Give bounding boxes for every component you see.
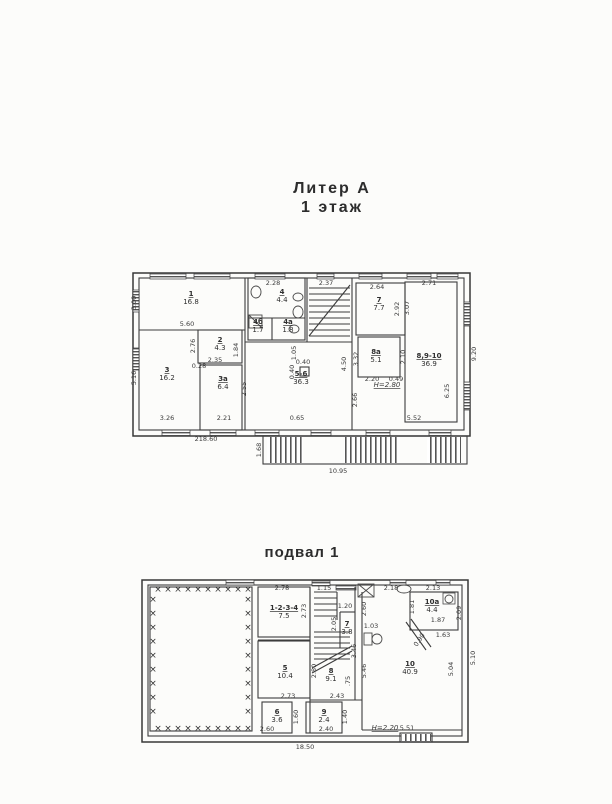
plumbing-fixture: [293, 293, 303, 301]
dimension-label: 2.60: [260, 725, 274, 733]
dimension-label: 2.40: [319, 725, 333, 733]
room-area-label: 36.3: [293, 378, 309, 386]
window-hatch: [133, 348, 139, 370]
room-area-label: 4.3: [214, 344, 225, 352]
room-area-label: 1.7: [252, 326, 263, 334]
dimension-label: 6.25: [443, 384, 451, 398]
dimension-label: 2.05: [330, 617, 338, 631]
window-hatch: [336, 585, 356, 590]
room-area-label: 7.7: [373, 304, 384, 312]
wall-x-mark: ×: [244, 707, 252, 717]
steps-hatch: [427, 437, 461, 463]
room-area-label: 16.2: [159, 374, 175, 382]
wall-x-mark: ×: [154, 724, 162, 734]
room-area-label: 9.1: [325, 675, 336, 683]
window-hatch: [255, 430, 279, 436]
dimension-label: 2.64: [370, 283, 384, 291]
dimension-label: 5.16: [130, 371, 138, 385]
floor-plan-drawing: 5.602.282.372.642.713.005.169.202.761.84…: [0, 0, 612, 804]
dimension-label: 1.60: [292, 710, 300, 724]
wall-x-mark: ×: [214, 585, 222, 595]
dimension-label: 4.50: [340, 357, 348, 371]
dimension-label: 0.65: [290, 414, 304, 422]
window-hatch: [437, 273, 458, 279]
dimension-label: 5.04: [447, 662, 455, 676]
wall-x-mark: ×: [224, 724, 232, 734]
wall-line: [312, 646, 352, 668]
wall-x-mark: ×: [149, 651, 157, 661]
wall-x-mark: ×: [184, 585, 192, 595]
dimension-label: 2.73: [300, 604, 308, 618]
dimension-label: 0.28: [192, 362, 206, 370]
wall-x-mark: ×: [244, 637, 252, 647]
window-hatch: [464, 382, 470, 410]
wall-x-mark: ×: [164, 724, 172, 734]
steps-hatch: [401, 734, 431, 741]
wall-x-mark: ×: [149, 637, 157, 647]
wall-x-mark: ×: [154, 585, 162, 595]
plumbing-fixture: [372, 634, 382, 644]
room-number-label: 5-6: [295, 370, 308, 378]
wall-x-mark: ×: [174, 585, 182, 595]
dimension-label: 5.10: [469, 651, 477, 665]
dimension-label: 1.84: [232, 343, 240, 357]
dimension-label: 2.80: [310, 664, 318, 678]
wall-x-mark: ×: [214, 724, 222, 734]
dimension-label: 218.60: [195, 435, 218, 443]
basement-plan: ××××××××××××××××××××××××××××××××××××××2.…: [142, 580, 477, 751]
room-number-label: 1: [189, 290, 194, 298]
wall-x-mark: ×: [149, 707, 157, 717]
dimension-label: 18.50: [296, 743, 315, 751]
dimension-label: 1.68: [255, 443, 263, 457]
room-number-label: 5: [283, 664, 288, 672]
wall-x-mark: ×: [204, 724, 212, 734]
wall-x-mark: ×: [184, 724, 192, 734]
dimension-label: 2.18: [384, 584, 398, 592]
dimension-label: 2.92: [393, 302, 401, 316]
room-number-label: 10а: [425, 598, 440, 606]
wall-x-mark: ×: [234, 724, 242, 734]
wall-x-mark: ×: [244, 651, 252, 661]
room-area-label: 4.4: [426, 606, 438, 614]
scanned-floor-plan-page: Литер А 1 этаж подвал 1 5.602.282.372.64…: [0, 0, 612, 804]
plumbing-fixture: [445, 595, 453, 603]
window-hatch: [311, 430, 331, 436]
dimension-label: 10.95: [329, 467, 348, 475]
plumbing-fixture: [251, 286, 261, 298]
wall-x-mark: ×: [194, 585, 202, 595]
room-number-label: 10: [405, 660, 415, 668]
dimension-label: 2.35: [208, 356, 222, 364]
dimension-label: 5.51: [400, 724, 414, 732]
wall-x-mark: ×: [149, 693, 157, 703]
dimension-label: 1.63: [436, 631, 450, 639]
room-area-label: 2.4: [318, 716, 330, 724]
dimension-label: 1.20: [338, 602, 352, 610]
dimension-label: 2.71: [422, 279, 436, 287]
wall-x-mark: ×: [149, 595, 157, 605]
window-hatch: [359, 273, 382, 279]
wall-line: [309, 285, 350, 336]
wall-x-mark: ×: [244, 665, 252, 675]
dimension-label: 3.00: [130, 296, 138, 310]
room-number-label: 8,9-10: [416, 352, 441, 360]
wall-x-mark: ×: [244, 693, 252, 703]
wall-x-mark: ×: [149, 665, 157, 675]
room-number-label: 7: [345, 620, 350, 628]
steps-hatch: [344, 437, 400, 463]
wall-x-mark: ×: [244, 679, 252, 689]
dimension-label: .75: [344, 676, 352, 686]
window-hatch: [162, 430, 190, 436]
wall-x-mark: ×: [244, 609, 252, 619]
wall-x-mark: ×: [149, 679, 157, 689]
dimension-label: 1.03: [364, 622, 378, 630]
wall-x-mark: ×: [149, 609, 157, 619]
steps-hatch: [267, 437, 303, 463]
room-area-label: 4.4: [276, 296, 288, 304]
dimension-label: 2.66: [351, 393, 359, 407]
dimension-label: 2.43: [330, 692, 344, 700]
dimension-label: 2.78: [275, 584, 289, 592]
dimension-label: 2.60: [360, 602, 368, 616]
dimension-label: 9.20: [470, 347, 478, 361]
room-number-label: 3: [165, 366, 170, 374]
dimension-label: 2.76: [189, 339, 197, 353]
dimension-label: 1.15: [317, 584, 331, 592]
dimension-label: Н=2.20: [372, 724, 399, 732]
dimension-label: 3.26: [160, 414, 174, 422]
room-area-label: 7.5: [278, 612, 289, 620]
wall-x-mark: ×: [244, 623, 252, 633]
window-hatch: [429, 430, 451, 436]
dimension-label: 5.52: [407, 414, 421, 422]
dimension-label: 3.32: [352, 352, 360, 366]
room-number-label: 4а: [283, 318, 293, 326]
window-hatch: [194, 273, 230, 279]
room-number-label: 1-2-3-4: [270, 604, 298, 612]
room-area-label: 5.1: [370, 356, 381, 364]
dimension-label: 3.46: [350, 644, 358, 658]
room-number-label: 8а: [371, 348, 381, 356]
plumbing-fixture: [397, 585, 411, 593]
room-number-label: 4б: [253, 318, 263, 326]
dimension-label: 2.55: [240, 382, 248, 396]
first-floor-plan: 5.602.282.372.642.713.005.169.202.761.84…: [130, 273, 478, 475]
dimension-label: 2.09: [455, 606, 463, 620]
room-area-label: 36.9: [421, 360, 437, 368]
dimension-label: 1.40: [341, 710, 349, 724]
dimension-label: 2.21: [217, 414, 231, 422]
room-number-label: 4: [280, 288, 285, 296]
room-number-label: 2: [218, 336, 223, 344]
room-number-label: 6: [275, 708, 280, 716]
plumbing-fixture: [293, 306, 303, 318]
wall-x-mark: ×: [244, 595, 252, 605]
fixture-box: [364, 633, 372, 645]
wall-x-mark: ×: [149, 623, 157, 633]
room-number-label: 7: [377, 296, 382, 304]
window-hatch: [150, 273, 186, 279]
dimension-label: 2.13: [426, 584, 440, 592]
room-area-label: 3.8: [341, 628, 352, 636]
room-area-label: 3.6: [271, 716, 283, 724]
room-number-label: 3а: [218, 375, 228, 383]
wall-rect: [150, 587, 252, 731]
wall-x-mark: ×: [164, 585, 172, 595]
wall-x-mark: ×: [224, 585, 232, 595]
wall-x-mark: ×: [244, 585, 252, 595]
room-area-label: 6.4: [217, 383, 229, 391]
dimension-label: 5.60: [180, 320, 194, 328]
wall-x-mark: ×: [204, 585, 212, 595]
dimension-label: 2.37: [319, 279, 333, 287]
window-hatch: [464, 302, 470, 326]
room-area-label: 1.8: [282, 326, 293, 334]
dimension-label: 2.28: [266, 279, 280, 287]
room-area-label: 40.9: [402, 668, 418, 676]
wall-x-mark: ×: [234, 585, 242, 595]
dimension-label: 2.10: [399, 350, 407, 364]
room-number-label: 9: [322, 708, 327, 716]
dimension-label: 5.46: [360, 664, 368, 678]
dimension-label: 1.87: [431, 616, 445, 624]
dimension-label: 3.07: [403, 301, 411, 315]
dimension-label: Н=2.80: [374, 381, 401, 389]
dimension-label: 1.81: [408, 600, 416, 614]
dimension-label: 2.73: [281, 692, 295, 700]
room-number-label: 8: [329, 667, 334, 675]
wall-x-mark: ×: [194, 724, 202, 734]
wall-x-mark: ×: [244, 724, 252, 734]
room-area-label: 10.4: [277, 672, 293, 680]
wall-x-mark: ×: [174, 724, 182, 734]
dimension-label: 0.40: [296, 358, 310, 366]
room-area-label: 16.8: [183, 298, 199, 306]
window-hatch: [366, 430, 390, 436]
